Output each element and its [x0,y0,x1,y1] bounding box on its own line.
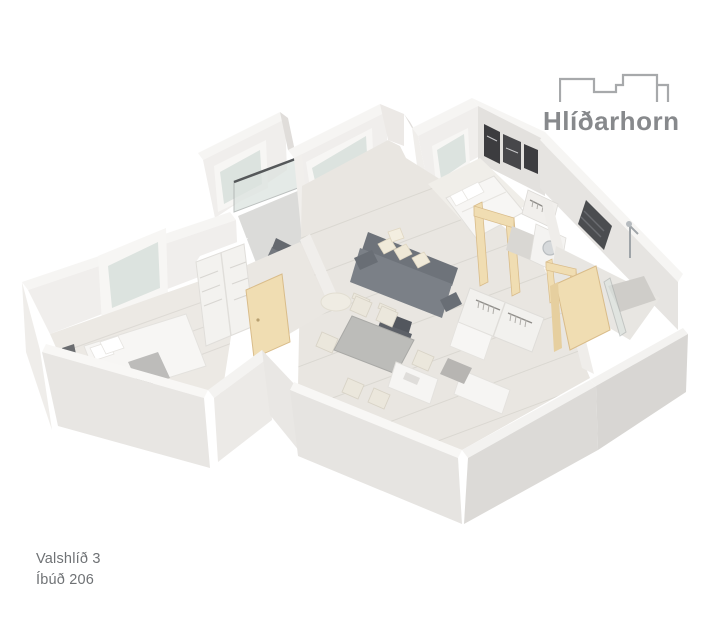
door-bedroom1 [246,274,290,358]
unit-line: Íbúð 206 [36,570,101,591]
coffee-table [321,293,351,311]
floorplan-page: Hlíðarhorn Valshlíð 3 Íbúð 206 [0,0,723,620]
footer-labels: Valshlíð 3 Íbúð 206 [36,549,101,590]
building-outline-icon [559,72,671,104]
address-line: Valshlíð 3 [36,549,101,570]
brand-name: Hlíðarhorn [543,106,693,137]
logo: Hlíðarhorn [543,72,693,137]
